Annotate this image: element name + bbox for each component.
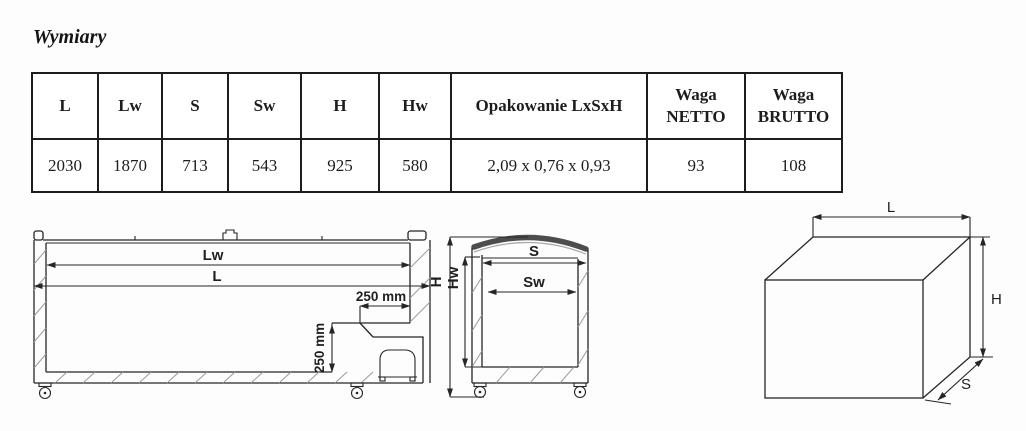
label-hw: Hw	[445, 266, 462, 289]
label-250mm-horizontal: 250 mm	[356, 289, 406, 304]
value-cell-s: 713	[162, 139, 228, 192]
header-cell-opakowanie: Opakowanie LxSxH	[451, 73, 647, 139]
label-s: S	[529, 243, 539, 260]
side-view-drawing: Lw L 250 mm 250 mm	[25, 220, 445, 425]
value-cell-h: 925	[301, 139, 379, 192]
value-cell-l: 2030	[32, 139, 98, 192]
front-view-drawing: S Sw H Hw	[430, 215, 605, 431]
compressor	[378, 350, 417, 381]
label-h: H	[991, 291, 1002, 308]
table-header-row: L Lw S Sw H Hw Opakowanie LxSxH Waga NET…	[32, 73, 842, 139]
header-cell-sw: Sw	[228, 73, 301, 139]
value-cell-hw: 580	[379, 139, 451, 192]
label-s: S	[961, 376, 971, 393]
package-box-drawing: L H S	[753, 196, 1023, 428]
label-l: L	[212, 268, 221, 285]
header-cell-s: S	[162, 73, 228, 139]
label-h: H	[430, 277, 445, 288]
label-sw: Sw	[523, 274, 545, 291]
value-cell-opakowanie: 2,09 x 0,76 x 0,93	[451, 139, 647, 192]
casters	[474, 383, 586, 398]
header-cell-l: L	[32, 73, 98, 139]
label-250mm-vertical: 250 mm	[312, 323, 327, 373]
value-cell-lw: 1870	[98, 139, 162, 192]
header-cell-waga-netto: Waga NETTO	[647, 73, 745, 139]
header-cell-h: H	[301, 73, 379, 139]
label-lw: Lw	[203, 247, 224, 264]
page-title: Wymiary	[33, 26, 106, 49]
dimension-lines	[450, 237, 586, 397]
label-l: L	[887, 199, 895, 216]
value-cell-sw: 543	[228, 139, 301, 192]
box-outline	[765, 237, 970, 398]
lid-handle	[223, 230, 237, 240]
header-cell-hw: Hw	[379, 73, 451, 139]
spec-sheet-page: Wymiary L Lw S Sw H Hw Opakowanie LxSxH …	[0, 0, 1026, 431]
value-cell-waga-brutto: 108	[745, 139, 842, 192]
dimension-lines	[34, 265, 430, 372]
header-cell-waga-brutto: Waga BRUTTO	[745, 73, 842, 139]
wall-hatching	[34, 248, 430, 383]
header-cell-lw: Lw	[98, 73, 162, 139]
casters	[39, 383, 363, 399]
table-data-row: 2030 1870 713 543 925 580 2,09 x 0,76 x …	[32, 139, 842, 192]
dimensions-table: L Lw S Sw H Hw Opakowanie LxSxH Waga NET…	[31, 72, 843, 193]
value-cell-waga-netto: 93	[647, 139, 745, 192]
